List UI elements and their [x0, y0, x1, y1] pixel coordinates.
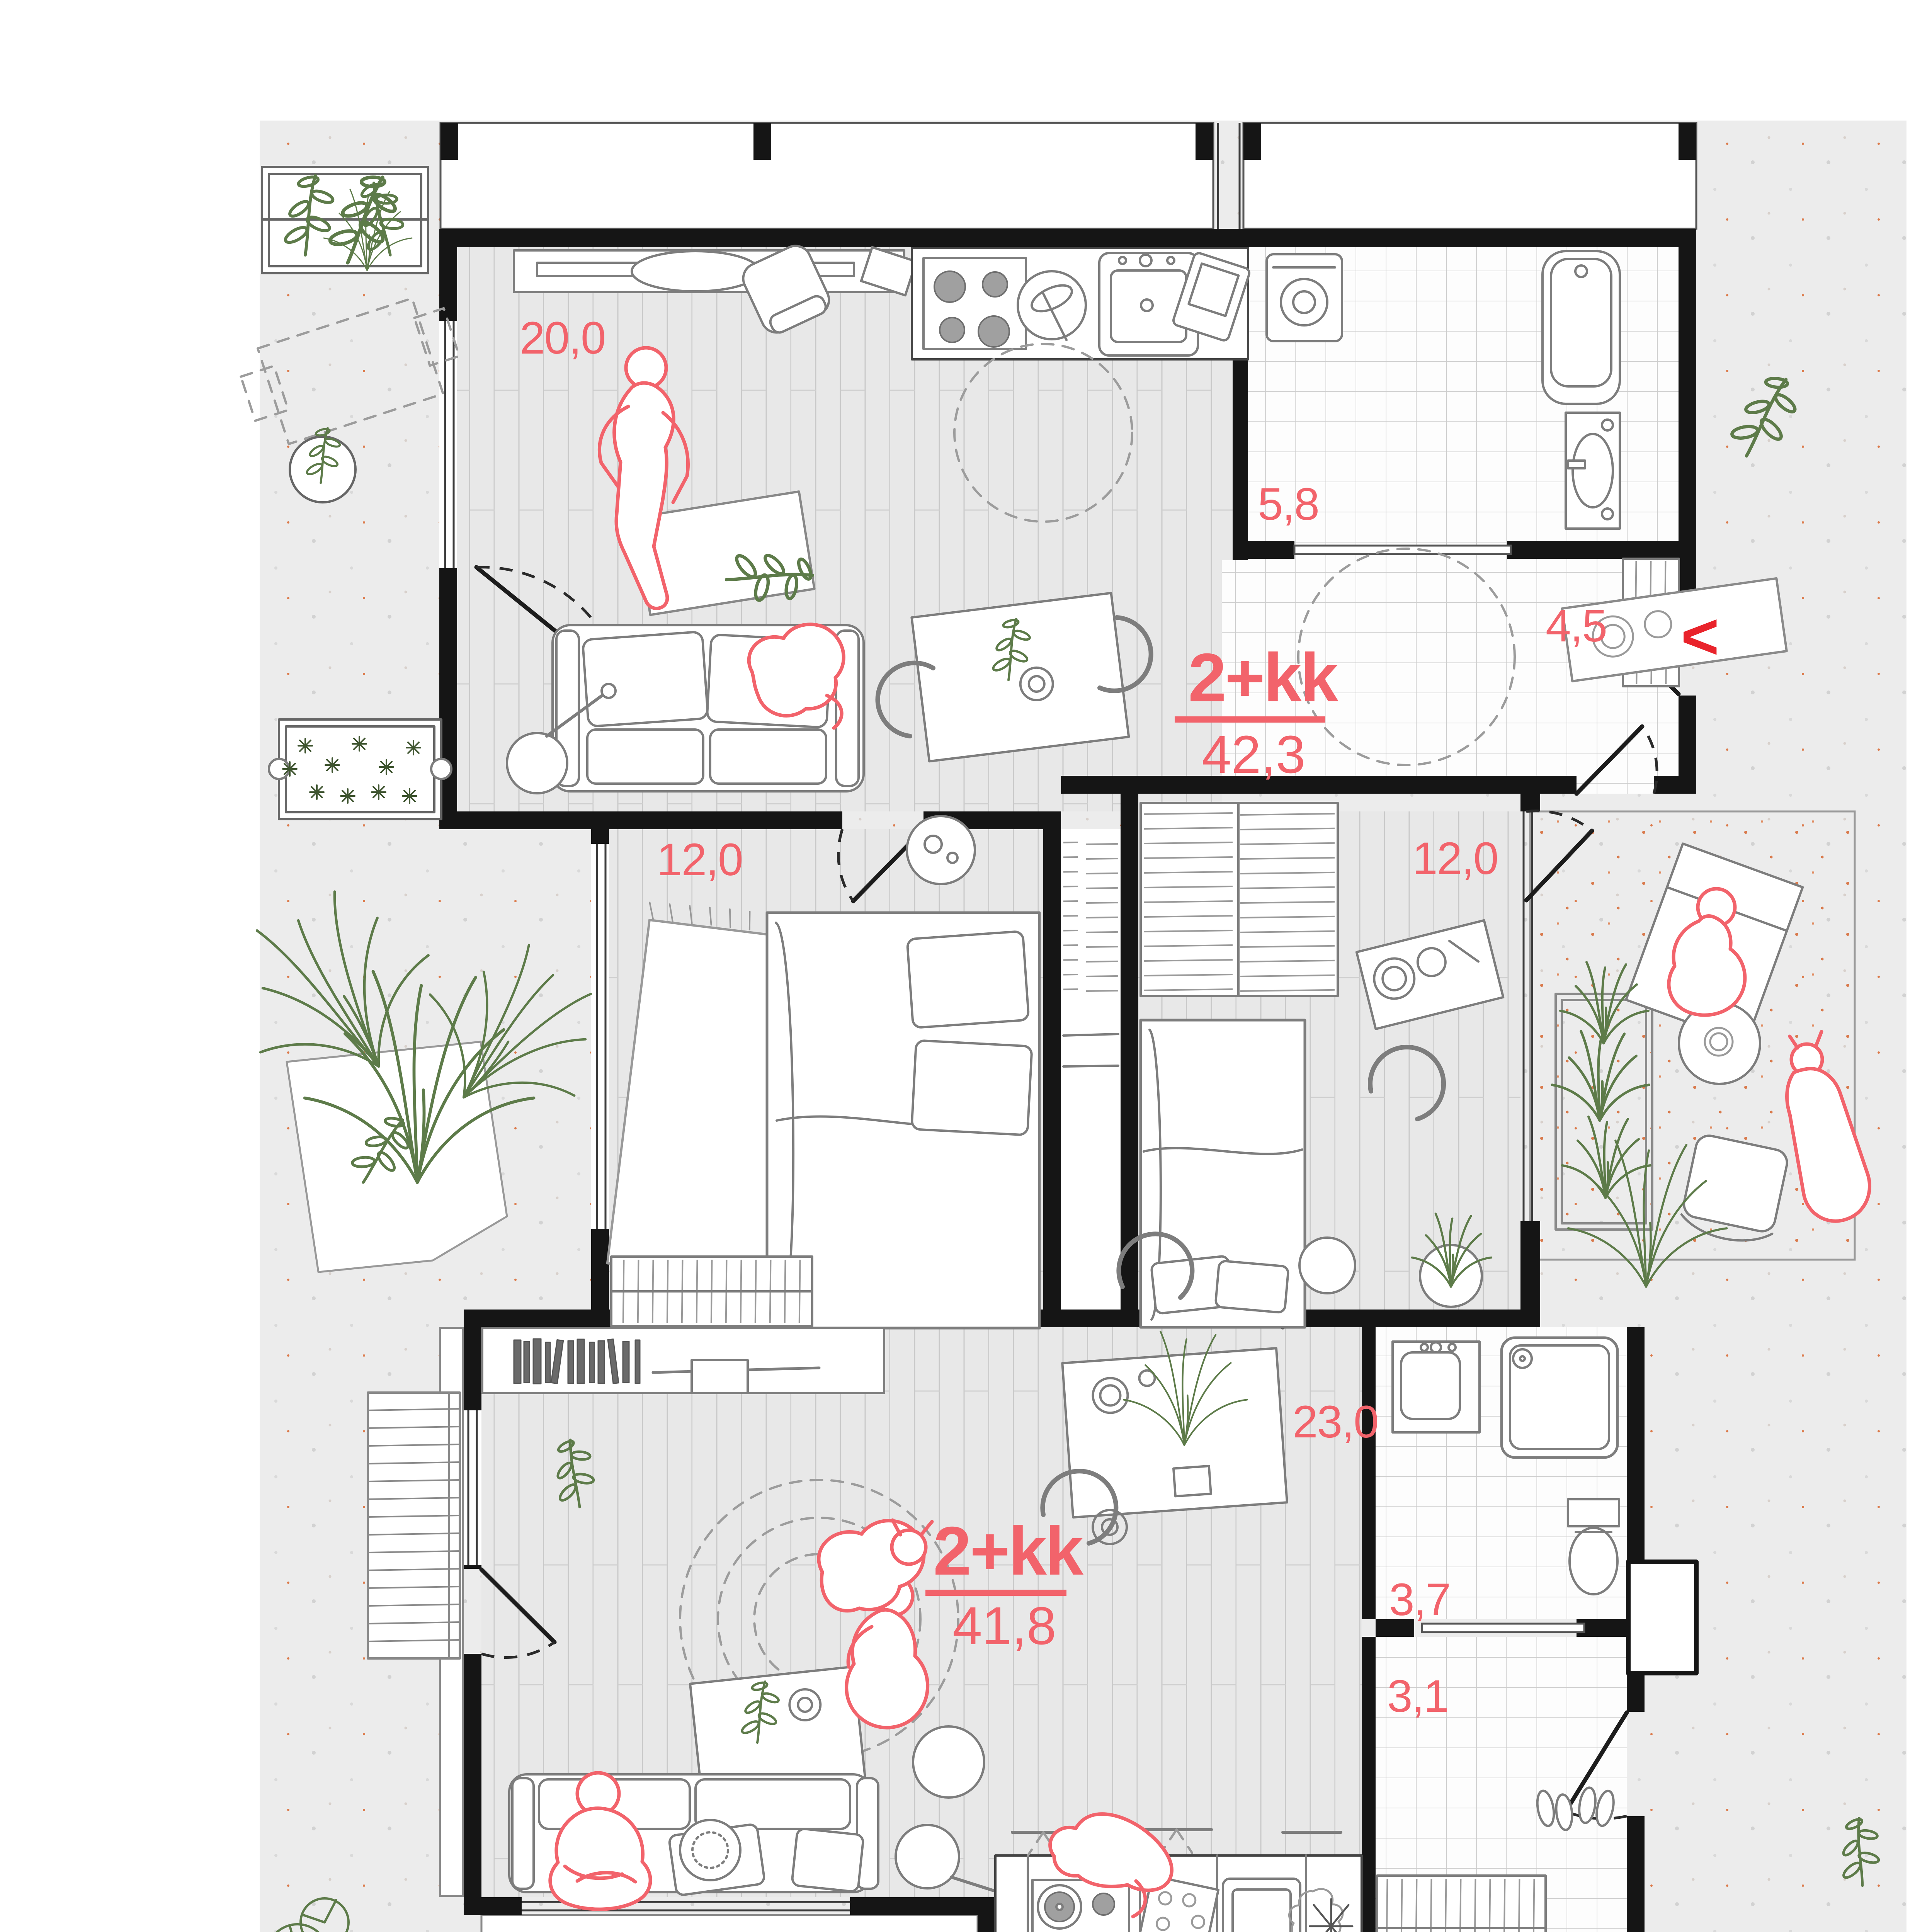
upper-terraces [440, 123, 1696, 229]
terrace-bottom-left [481, 1915, 978, 1932]
sink-top-icon [1566, 413, 1620, 529]
balcony-table-icon [1679, 1003, 1760, 1084]
toilet-icon [1568, 1499, 1619, 1594]
single-bed-icon [1141, 1020, 1305, 1327]
sideboard-tv-icon [514, 247, 916, 296]
floor-plan-drawing: 20,0 5,8 4,5 2+kk 42,3 12,0 12,0 23,0 2+… [0, 0, 1932, 1932]
label-type-bottom: 2+kk [933, 1512, 1084, 1589]
stairs-icon [368, 1393, 460, 1658]
sink-bottom-icon [1393, 1342, 1480, 1432]
label-living-bottom: 23,0 [1293, 1396, 1378, 1447]
label-bedroom-left: 12,0 [657, 834, 743, 885]
label-type-top: 2+kk [1188, 639, 1339, 716]
dining-table-top-icon [912, 593, 1129, 762]
pouf-icon [913, 1726, 984, 1798]
label-bedroom-right: 12,0 [1412, 833, 1498, 884]
bedside-table-icon [907, 816, 975, 884]
kitchen-counter-bottom-icon [995, 1855, 1362, 1932]
label-bath-top: 5,8 [1258, 479, 1319, 530]
wardrobe-left-icon [611, 1257, 812, 1326]
label-bath-bottom: 3,7 [1389, 1574, 1450, 1625]
entrance-chevron: < [1681, 600, 1719, 673]
bathtub-icon [1543, 251, 1620, 404]
kitchen-counter-top-icon [912, 248, 1251, 359]
label-hall-bottom: 3,1 [1387, 1671, 1448, 1722]
wardrobe-right-icon [1141, 803, 1338, 996]
floor-plan-page: 20,0 5,8 4,5 2+kk 42,3 12,0 12,0 23,0 2+… [0, 0, 1932, 1932]
dining-table-bottom-icon [1062, 1348, 1287, 1517]
washing-machine-icon [1267, 254, 1342, 341]
label-area-top: 42,3 [1202, 725, 1306, 784]
bookshelf-icon [482, 1328, 884, 1393]
label-area-bottom: 41,8 [952, 1596, 1056, 1656]
shower-icon [1502, 1338, 1617, 1458]
stool-icon [1299, 1238, 1355, 1293]
duct-niche [1628, 1562, 1696, 1673]
wardrobe-hall-bottom-icon [1377, 1876, 1546, 1932]
label-hall-top: 4,5 [1546, 600, 1607, 651]
label-living-top: 20,0 [520, 313, 605, 364]
